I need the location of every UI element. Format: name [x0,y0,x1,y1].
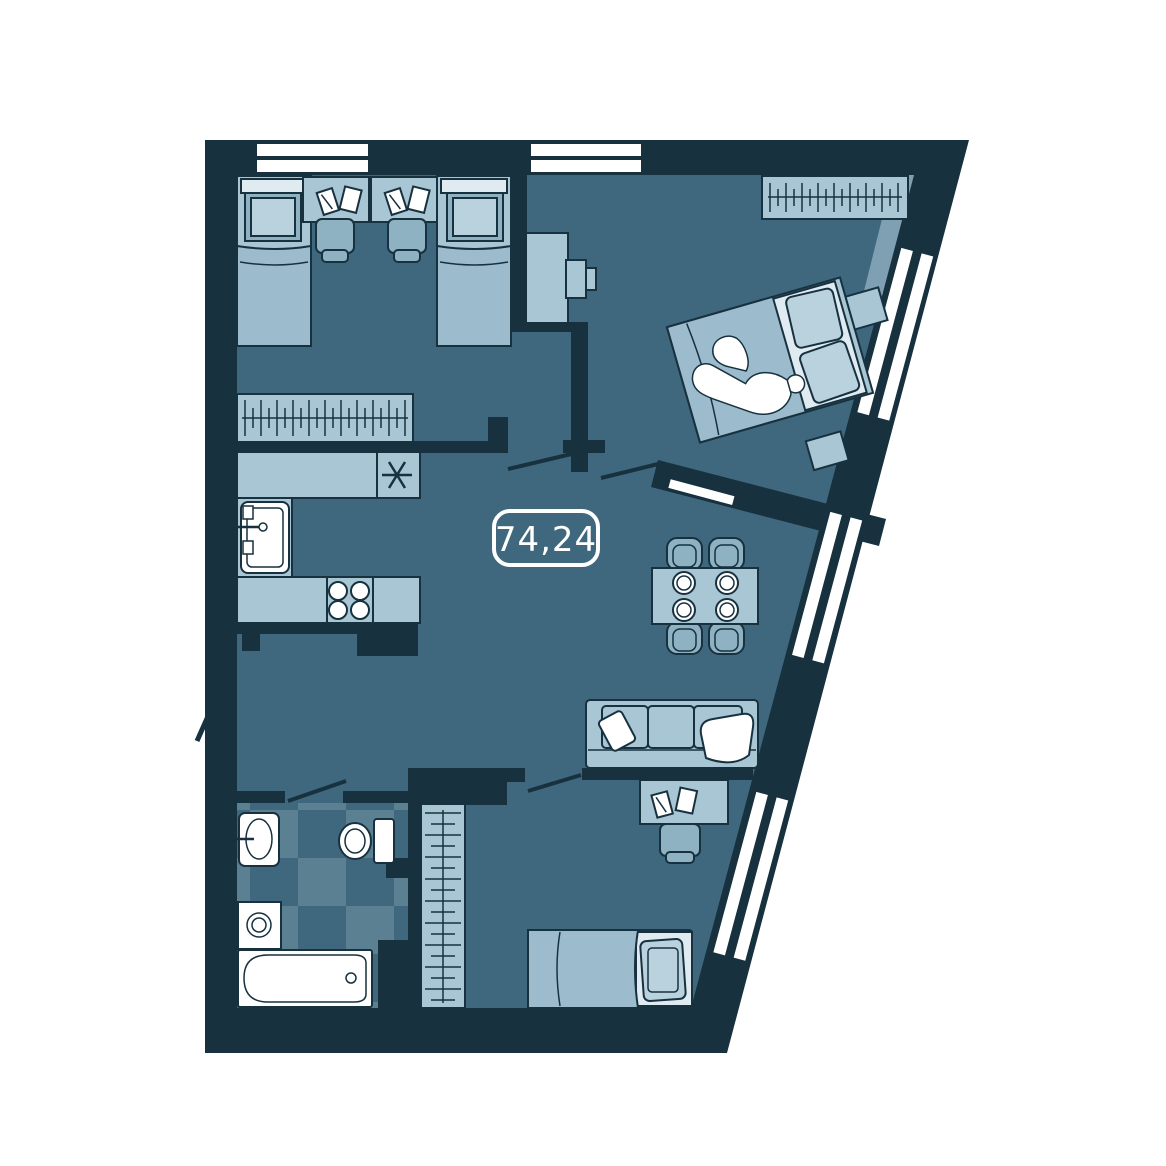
master-wardrobe [762,176,908,219]
dining-table [652,568,758,624]
dining-chair [709,622,744,654]
washing-machine [238,902,281,949]
sofa [586,700,758,768]
area-value: 74,24 [495,520,597,560]
kids-desk-left [303,177,369,222]
floor-plan: 74,24 [0,0,1166,1166]
kids-chair-left [316,219,354,262]
bedroom-chair [660,824,700,863]
kitchen-sink [237,502,289,573]
bathtub [238,950,372,1007]
kids-wardrobe [237,394,413,442]
area-label: 74,24 [494,511,598,565]
counter-bottom-row [237,577,420,623]
dining-chair [667,538,702,570]
duct-shaft [378,940,413,1008]
floor-plan-page: 74,24 [0,0,1166,1166]
dining-chair [667,622,702,654]
dining-chair [709,538,744,570]
kids-bed-right [437,176,511,346]
bed-blanket [528,930,638,1008]
bedroom-bed [528,930,692,1008]
book [676,788,697,814]
washbasin [237,813,279,866]
wardrobe-rail [421,804,465,1008]
kids-desk-right [371,177,437,222]
tv-screen [586,268,596,290]
pillow [785,287,843,348]
sofa-blanket [701,714,754,763]
bedroom-desk [640,780,728,824]
kids-bed-left [237,176,311,346]
kids-chair-right [388,219,426,262]
tv [566,260,586,298]
